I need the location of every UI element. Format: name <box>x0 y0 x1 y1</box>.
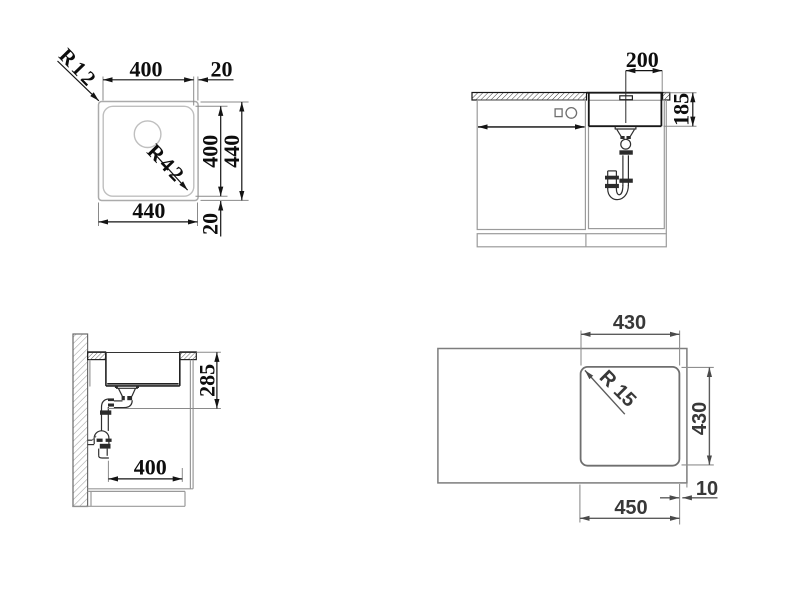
svg-text:400: 400 <box>130 57 163 82</box>
svg-text:200: 200 <box>626 47 659 72</box>
svg-text:10: 10 <box>696 478 718 500</box>
svg-text:450: 450 <box>614 497 647 519</box>
svg-text:20: 20 <box>211 57 233 82</box>
svg-text:285: 285 <box>195 364 220 397</box>
svg-text:185: 185 <box>669 93 694 126</box>
svg-text:430: 430 <box>613 312 646 334</box>
svg-text:440: 440 <box>132 198 165 223</box>
svg-text:400: 400 <box>134 455 167 480</box>
svg-text:440: 440 <box>219 135 244 168</box>
svg-text:R12: R12 <box>54 43 103 92</box>
svg-text:430: 430 <box>689 402 711 435</box>
svg-text:20: 20 <box>198 213 223 235</box>
svg-text:R42: R42 <box>142 139 191 188</box>
